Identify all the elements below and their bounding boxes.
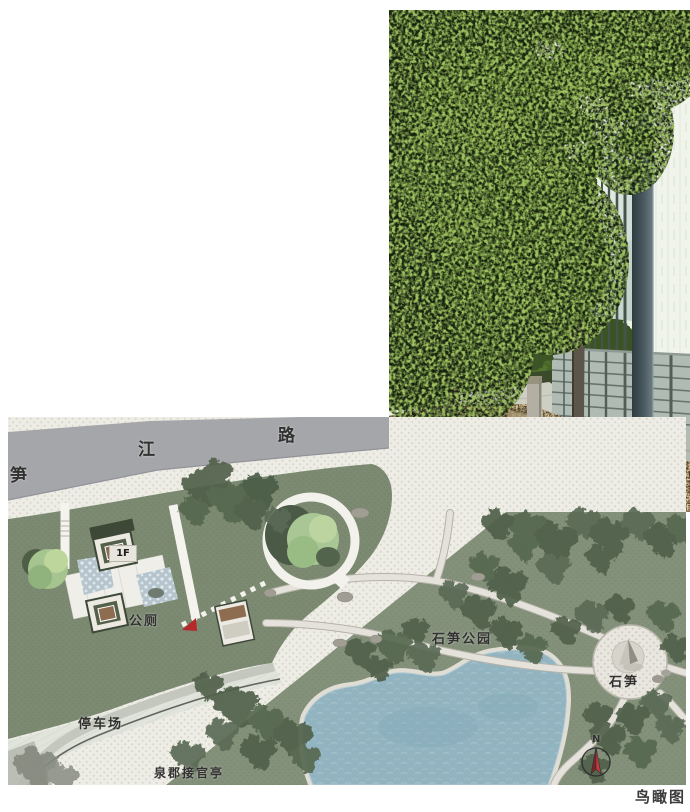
road-name-char-1: 笋 xyxy=(10,461,28,486)
park-name-label: 石笋公园 xyxy=(432,628,492,647)
page-caption: 鸟瞰图 xyxy=(486,786,686,807)
toilet-label: 公厕 xyxy=(129,610,159,629)
compass-north-label: N xyxy=(592,734,600,745)
building-floor-tag: 1F xyxy=(109,545,137,562)
pavilion-label: 泉郡接官亭 xyxy=(154,764,224,781)
site-plan: 笋 江 路 1F 公厕 停车场 泉郡接官亭 石笋公园 石笋 N xyxy=(8,417,686,785)
road-name-char-3: 路 xyxy=(278,421,296,446)
presentation-page: 笋 江 路 1F 公厕 停车场 泉郡接官亭 石笋公园 石笋 N 鸟瞰图 xyxy=(0,0,690,812)
parking-label: 停车场 xyxy=(78,713,123,732)
road-name-char-2: 江 xyxy=(138,435,156,460)
stone-label: 石笋 xyxy=(609,671,639,690)
